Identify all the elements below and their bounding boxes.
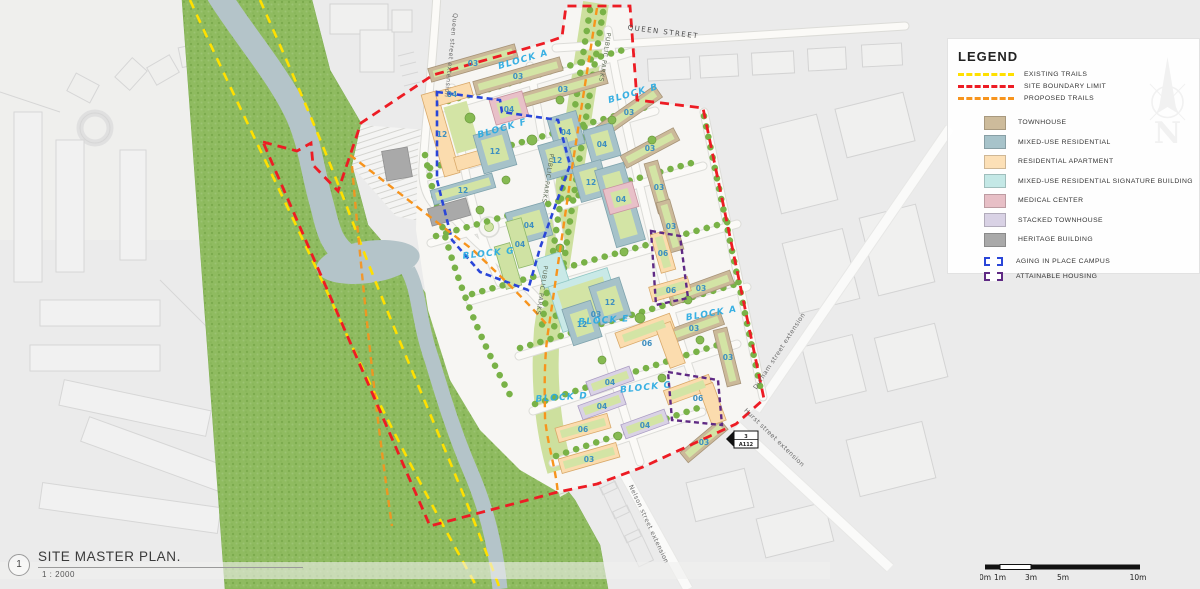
legend-row-residential-apartment: RESIDENTIAL APARTMENT [984, 152, 1199, 172]
svg-text:03: 03 [699, 438, 709, 447]
svg-text:03: 03 [584, 455, 594, 464]
site-master-plan-sheet: 03 03 03 03 03 03 03 03 03 03 03 04 12 0… [0, 0, 1200, 589]
svg-text:1m: 1m [994, 573, 1006, 582]
heritage-building-swatch [984, 233, 1006, 247]
attainable-housing-outline-swatch [984, 272, 1003, 281]
legend-title: LEGEND [958, 49, 1199, 64]
svg-text:06: 06 [693, 394, 703, 403]
svg-text:03: 03 [558, 85, 568, 94]
svg-text:06: 06 [578, 425, 588, 434]
svg-text:04: 04 [597, 402, 607, 411]
legend-panel: LEGEND EXISTING TRAILS SITE BOUNDARY LIM… [947, 38, 1200, 274]
svg-text:12: 12 [605, 298, 615, 307]
mixed-use-swatch [984, 135, 1006, 149]
svg-text:03: 03 [513, 72, 523, 81]
svg-text:04: 04 [605, 378, 615, 387]
legend-row-aging-in-place: AGING IN PLACE CAMPUS [984, 254, 1199, 269]
svg-text:10m: 10m [1130, 573, 1147, 582]
legend-row-proposed-trails: PROPOSED TRAILS [958, 92, 1199, 104]
svg-text:04: 04 [504, 105, 514, 114]
legend-row-mixed-use: MIXED-USE RESIDENTIAL [984, 133, 1199, 153]
svg-text:12: 12 [490, 147, 500, 156]
title-underline [38, 567, 303, 568]
legend-row-attainable-housing: ATTAINABLE HOUSING [984, 269, 1199, 284]
scale-bar: 0m 1m 3m 5m 10m [980, 558, 1150, 584]
stacked-townhouse-swatch [984, 213, 1006, 227]
svg-text:5m: 5m [1057, 573, 1069, 582]
svg-text:03: 03 [645, 144, 655, 153]
svg-text:03: 03 [654, 183, 664, 192]
legend-row-signature-building: MIXED-USE RESIDENTIAL SIGNATURE BUILDING [984, 172, 1199, 192]
svg-text:A112: A112 [739, 442, 754, 448]
svg-text:04: 04 [640, 421, 650, 430]
existing-trails-line-swatch [958, 73, 1014, 76]
svg-text:06: 06 [658, 249, 668, 258]
svg-text:06: 06 [666, 286, 676, 295]
medical-center-swatch [984, 194, 1006, 208]
svg-text:3: 3 [744, 434, 748, 440]
svg-text:04: 04 [616, 195, 626, 204]
legend-row-medical-center: MEDICAL CENTER [984, 191, 1199, 211]
svg-text:04: 04 [515, 240, 525, 249]
svg-text:04: 04 [561, 128, 571, 137]
proposed-trails-line-swatch [958, 97, 1014, 100]
legend-row-townhouse: TOWNHOUSE [984, 113, 1199, 133]
legend-row-heritage-building: HERITAGE BUILDING [984, 230, 1199, 250]
svg-text:03: 03 [666, 222, 676, 231]
svg-text:3m: 3m [1025, 573, 1037, 582]
legend-row-existing-trails: EXISTING TRAILS [958, 68, 1199, 80]
svg-text:04: 04 [524, 221, 534, 230]
legend-row-site-boundary: SITE BOUNDARY LIMIT [958, 80, 1199, 92]
title-block: 1 SITE MASTER PLAN. 1 : 2000 [8, 548, 328, 586]
site-boundary-line-swatch [958, 85, 1014, 88]
svg-text:04: 04 [597, 140, 607, 149]
svg-text:03: 03 [689, 324, 699, 333]
svg-text:0m: 0m [980, 573, 991, 582]
svg-text:12: 12 [437, 130, 447, 139]
svg-text:12: 12 [586, 178, 596, 187]
svg-text:06: 06 [642, 339, 652, 348]
sheet-scale: 1 : 2000 [42, 570, 75, 579]
aging-in-place-outline-swatch [984, 257, 1003, 266]
townhouse-swatch [984, 116, 1006, 130]
sheet-title: SITE MASTER PLAN. [38, 549, 181, 564]
residential-apartment-swatch [984, 155, 1006, 169]
svg-text:03: 03 [624, 108, 634, 117]
svg-text:12: 12 [458, 186, 468, 195]
svg-text:03: 03 [696, 284, 706, 293]
signature-building-swatch [984, 174, 1006, 188]
svg-text:03: 03 [468, 59, 478, 68]
drawing-number-bubble: 1 [8, 554, 30, 576]
svg-text:03: 03 [723, 353, 733, 362]
legend-row-stacked-townhouse: STACKED TOWNHOUSE [984, 211, 1199, 231]
